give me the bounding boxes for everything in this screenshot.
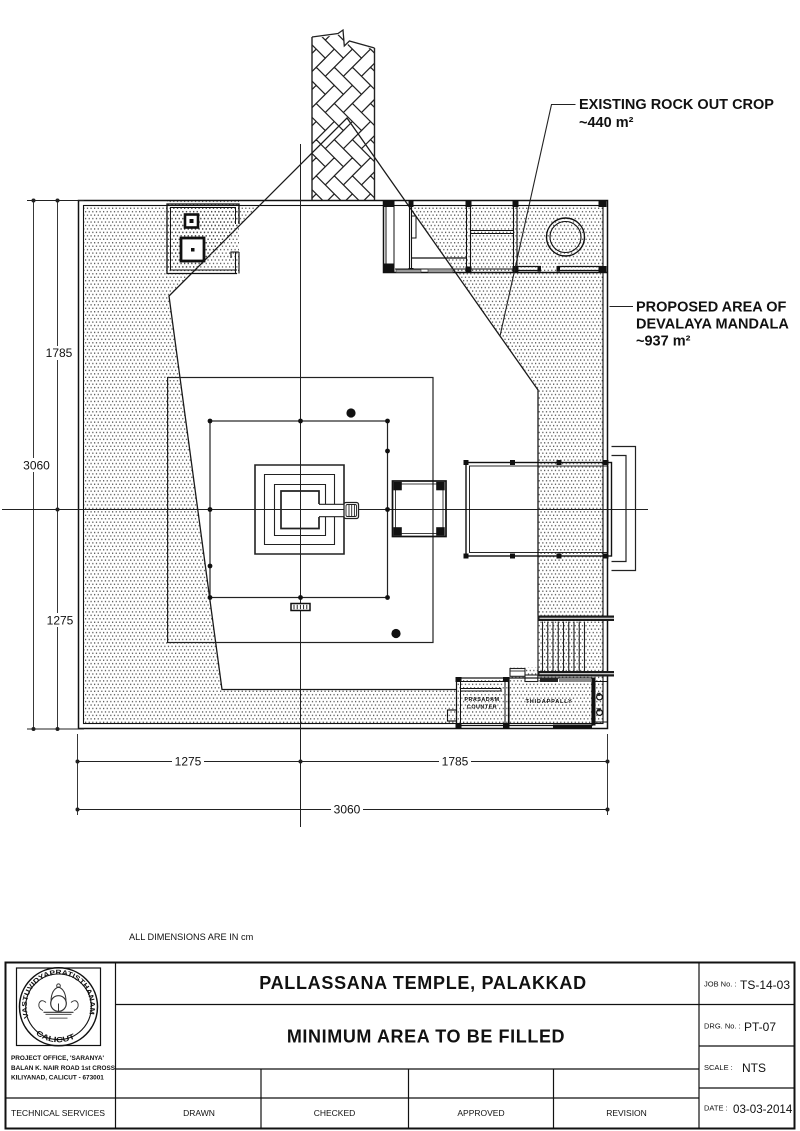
svg-text:3060: 3060 — [334, 803, 361, 817]
svg-text:3060: 3060 — [23, 459, 50, 473]
svg-text:APPROVED: APPROVED — [457, 1108, 504, 1118]
svg-text:1275: 1275 — [175, 755, 202, 769]
svg-text:BALAN K. NAIR ROAD 1st CROSS: BALAN K. NAIR ROAD 1st CROSS — [11, 1065, 116, 1072]
svg-text:SCALE :: SCALE : — [704, 1063, 733, 1072]
svg-text:PALLASSANA TEMPLE, PALAKKAD: PALLASSANA TEMPLE, PALAKKAD — [259, 973, 587, 993]
svg-text:MINIMUM AREA TO BE FILLED: MINIMUM AREA TO BE FILLED — [287, 1027, 565, 1047]
svg-text:ALL DIMENSIONS ARE IN cm: ALL DIMENSIONS ARE IN cm — [129, 932, 254, 942]
svg-text:03-03-2014: 03-03-2014 — [733, 1103, 793, 1116]
svg-text:1785: 1785 — [442, 755, 469, 769]
svg-text:COUNTER: COUNTER — [467, 705, 497, 711]
svg-text:JOB No. :: JOB No. : — [704, 980, 737, 989]
svg-text:PROJECT OFFICE, 'SARANYA': PROJECT OFFICE, 'SARANYA' — [11, 1055, 104, 1062]
svg-text:DRG. No. :: DRG. No. : — [704, 1022, 741, 1031]
svg-text:1785: 1785 — [46, 346, 73, 360]
svg-text:TECHNICAL SERVICES: TECHNICAL SERVICES — [11, 1108, 105, 1118]
svg-text:~440 m²: ~440 m² — [579, 115, 634, 131]
svg-text:~937 m²: ~937 m² — [636, 334, 691, 350]
svg-text:TS-14-03: TS-14-03 — [740, 978, 790, 992]
svg-text:PT-07: PT-07 — [744, 1020, 776, 1034]
svg-text:DATE :: DATE : — [704, 1104, 728, 1113]
svg-text:DRAWN: DRAWN — [183, 1108, 215, 1118]
svg-text:REVISION: REVISION — [606, 1108, 647, 1118]
svg-text:PRASADAM: PRASADAM — [464, 697, 499, 703]
svg-text:NTS: NTS — [742, 1061, 766, 1075]
svg-text:PROPOSED AREA OF: PROPOSED AREA OF — [636, 300, 787, 316]
svg-text:1275: 1275 — [47, 614, 74, 628]
svg-text:DEVALAYA MANDALA: DEVALAYA MANDALA — [636, 317, 789, 333]
svg-text:CHECKED: CHECKED — [314, 1108, 356, 1118]
svg-text:KILIYANAD, CALICUT - 673001: KILIYANAD, CALICUT - 673001 — [11, 1075, 104, 1082]
svg-text:THIDAPPALLY: THIDAPPALLY — [525, 699, 572, 705]
svg-text:EXISTING ROCK OUT CROP: EXISTING ROCK OUT CROP — [579, 97, 774, 113]
